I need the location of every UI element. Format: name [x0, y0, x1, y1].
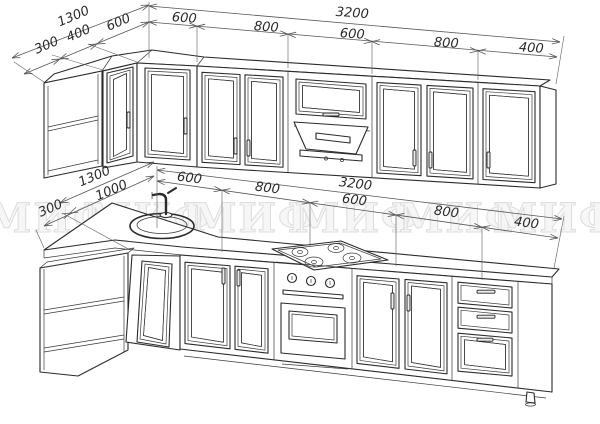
dim-label-upper-main-seg-4: 400 — [518, 40, 544, 57]
drawer-handle[interactable] — [477, 338, 493, 341]
dim-label-lower-main-seg-0: 600 — [176, 170, 202, 188]
drawer-handle[interactable] — [477, 315, 495, 318]
drawer-front — [458, 307, 512, 333]
sink-corner-door[interactable] — [137, 261, 172, 347]
dim-label-lower-main-seg-2: 600 — [341, 192, 367, 210]
cabinet-leg — [526, 392, 535, 403]
hood-flip-door-handle[interactable] — [323, 113, 339, 116]
upper-right-side-panel — [540, 86, 556, 188]
range-hood — [294, 122, 370, 162]
upper-door-800b-right-frame — [427, 85, 473, 178]
dimension-arrow — [478, 48, 486, 54]
base-800b-handle[interactable] — [407, 295, 410, 311]
base-800b-handle[interactable] — [391, 293, 394, 309]
drawer-handle[interactable] — [477, 290, 495, 293]
upper-left-wall-door-handle[interactable] — [127, 112, 130, 128]
upper-corner-door[interactable] — [145, 68, 190, 160]
upper-door-400-frame — [483, 89, 535, 183]
dim-label-lower-main-seg-1: 800 — [254, 180, 280, 198]
dim-label-upper-left-seg-0: 300 — [32, 34, 61, 58]
upper-800a-handle[interactable] — [234, 138, 237, 154]
dimension-arrow — [470, 48, 478, 54]
drawing-canvas: МИФ МИФ МИФ МИФ МИФ МИФ — [0, 0, 600, 424]
upper-door-800a-right-frame — [245, 75, 283, 167]
dim-label-upper-main-seg-2: 600 — [339, 26, 365, 43]
base-door-800b-right[interactable] — [405, 279, 447, 373]
upper-door-800b-right[interactable] — [427, 85, 473, 178]
cabinet-leg-foot — [526, 403, 536, 406]
upper-800b-handle[interactable] — [413, 150, 416, 166]
dim-label-upper-left-seg-2: 600 — [104, 11, 133, 35]
dim-label-lower-main-seg-3: 800 — [433, 204, 459, 222]
kitchen-elevation-drawing: МИФ МИФ МИФ МИФ МИФ МИФ — [0, 0, 600, 424]
upper-800a-handle[interactable] — [247, 140, 250, 156]
upper-corner-door-handle[interactable] — [184, 118, 187, 134]
base-door-800b-left[interactable] — [357, 276, 399, 369]
faucet-lever[interactable] — [168, 188, 176, 193]
dim-label-upper-main-seg-1: 800 — [253, 19, 279, 36]
drawer-front — [458, 282, 512, 308]
upper-door-400[interactable] — [483, 89, 535, 183]
upper-400-door-handle[interactable] — [487, 152, 490, 168]
base-open-shelf-unit — [40, 253, 128, 376]
dim-label-upper-main-total: 3200 — [335, 5, 369, 22]
dim-label-upper-main-seg-0: 600 — [171, 10, 197, 27]
base-800a-handle[interactable] — [222, 268, 225, 284]
drawer-top[interactable] — [458, 282, 512, 308]
base-800a-handle[interactable] — [237, 270, 240, 286]
watermark-text: МИФ — [493, 195, 600, 242]
upper-door-800a-right[interactable] — [245, 75, 283, 167]
dim-label-upper-main-seg-3: 800 — [433, 35, 459, 52]
upper-800b-handle[interactable] — [429, 152, 432, 168]
drawer-middle[interactable] — [458, 307, 512, 333]
extension-line — [556, 36, 564, 84]
upper-open-shelf-unit — [44, 71, 102, 178]
dim-label-lower-main-seg-4: 400 — [513, 215, 539, 233]
dimension-arrow — [364, 38, 372, 44]
